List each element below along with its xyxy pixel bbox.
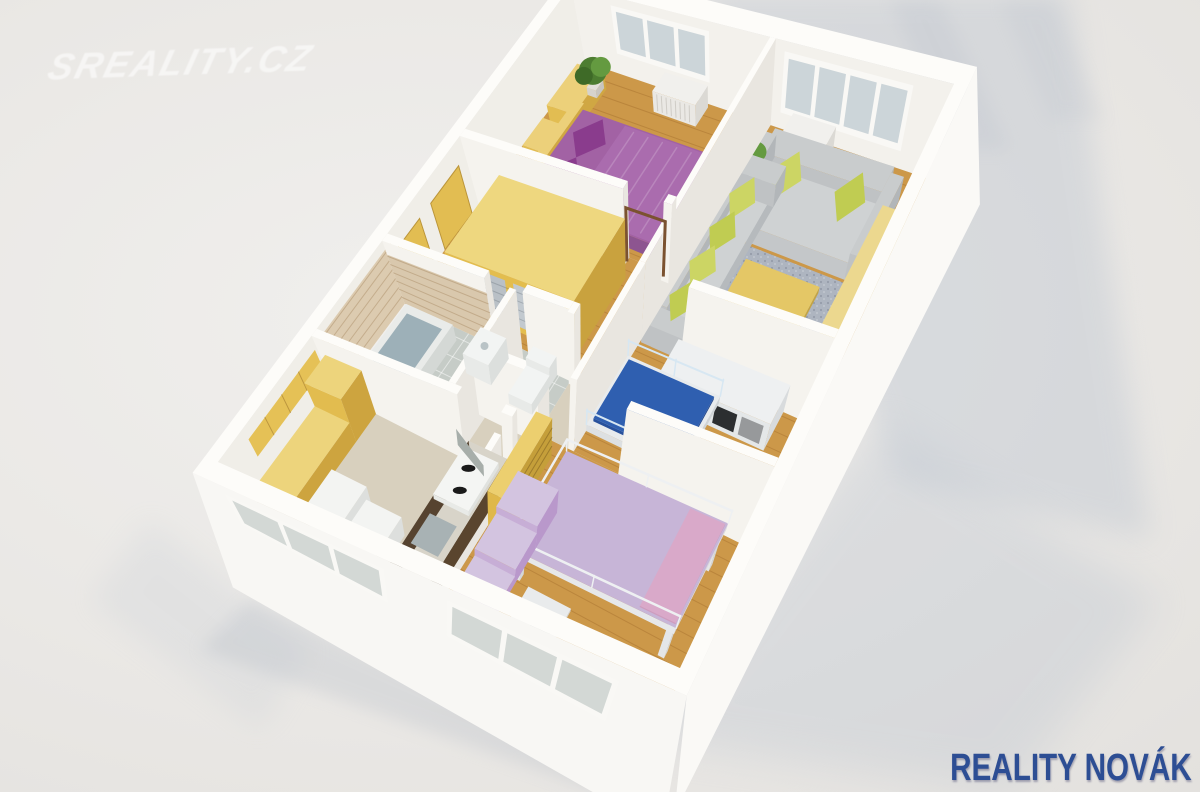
floorplan-scene: SREALITY.CZ REALITY NOVÁK bbox=[0, 0, 1200, 792]
reality-novak-watermark: REALITY NOVÁK bbox=[950, 747, 1192, 790]
floorplan-svg bbox=[0, 0, 1200, 792]
